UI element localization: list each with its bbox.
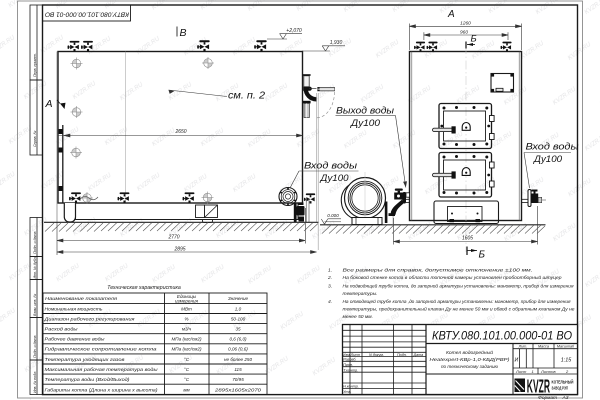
svg-text:Лит.: Лит. [518, 345, 528, 349]
svg-text:В: В [180, 27, 187, 39]
svg-text:Вход воды: Вход воды [526, 141, 579, 152]
svg-text:Вход воды: Вход воды [304, 160, 357, 171]
svg-text:не более 250: не более 250 [224, 357, 252, 362]
svg-text:Т.контр.: Т.контр. [343, 368, 358, 372]
svg-text:Справ. №: Справ. № [33, 131, 37, 147]
svg-text:На отводящей трубе котла ,до з: На отводящей трубе котла ,до запорной ар… [343, 298, 571, 305]
svg-text:Максимальная рабочая температу: Максимальная рабочая температура воды [45, 367, 159, 372]
svg-text:35: 35 [235, 327, 241, 332]
svg-text:Котел водогрейный: Котел водогрейный [446, 349, 493, 355]
svg-text:Разраб.: Разраб. [343, 358, 356, 362]
svg-text:КОТЕЛЬНЫЙ: КОТЕЛЬНЫЙ [552, 380, 574, 385]
svg-text:Техническая характеристика: Техническая характеристика [107, 285, 181, 291]
svg-text:2895: 2895 [173, 246, 185, 252]
svg-text:Лист: Лист [515, 369, 527, 374]
svg-text:Н.контр.: Н.контр. [343, 385, 359, 389]
svg-text:KVZR: KVZR [527, 375, 550, 396]
svg-text:2650: 2650 [174, 129, 186, 135]
svg-text:70/95: 70/95 [232, 377, 244, 382]
svg-text:Б: Б [471, 34, 477, 45]
svg-text:1:15: 1:15 [561, 358, 572, 364]
svg-text:960: 960 [460, 29, 468, 35]
svg-text:см. п. 2: см. п. 2 [228, 91, 266, 102]
svg-text:1605: 1605 [462, 236, 473, 242]
svg-text:Диапазон рабочего регулировани: Диапазон рабочего регулирования [43, 316, 135, 321]
svg-text:Ду100: Ду100 [319, 172, 349, 183]
svg-text:МВт: МВт [181, 306, 192, 311]
svg-text:На подводящей трубе котла, д: На подводящей трубе котла, до запорной а… [343, 283, 574, 290]
svg-text:МПа (кгс/см2): МПа (кгс/см2) [171, 337, 201, 342]
svg-text:115: 115 [234, 367, 242, 372]
svg-text:°С: °С [184, 357, 190, 362]
svg-text:Наименование показателя: Наименование показателя [45, 296, 118, 301]
svg-text:Габариты котла (Длина х ширина: Габариты котла (Длина х ширина х высота) [45, 388, 159, 393]
svg-text:Масса: Масса [538, 345, 549, 349]
svg-text:°С: °С [184, 377, 190, 382]
svg-text:измерения: измерения [175, 299, 199, 304]
svg-text:1,930: 1,930 [330, 40, 343, 46]
svg-text:мм: мм [183, 388, 190, 393]
svg-text:0.000: 0.000 [327, 213, 339, 218]
svg-text:4.: 4. [328, 299, 332, 305]
svg-text:Выход воды: Выход воды [336, 105, 394, 116]
svg-text:Номинальная мощность: Номинальная мощность [45, 306, 104, 311]
svg-text:0,06 (0,6): 0,06 (0,6) [228, 347, 248, 352]
svg-text:50-100: 50-100 [231, 316, 246, 321]
svg-text:А3: А3 [562, 395, 569, 400]
svg-text:Все размеры для справок, допус: Все размеры для справок, допустимое откл… [343, 268, 533, 274]
svg-text:Формат: Формат [538, 395, 557, 400]
svg-text:1.: 1. [328, 268, 332, 274]
svg-text:°С: °С [184, 367, 190, 372]
svg-text:0,6 (6,0): 0,6 (6,0) [229, 337, 247, 342]
svg-text:Перв. примен.: Перв. примен. [33, 53, 37, 77]
svg-text:Изм.Лист: Изм.Лист [343, 353, 360, 357]
svg-text:КВТУ.080.101.00.000-01 ВО: КВТУ.080.101.00.000-01 ВО [432, 331, 572, 343]
svg-text:Подп.: Подп. [397, 353, 407, 357]
svg-text:N докум.: N докум. [369, 353, 384, 357]
svg-text:Взам. инв. №: Взам. инв. № [33, 294, 37, 316]
svg-text:Значение: Значение [228, 296, 249, 301]
svg-text:температуры.: температуры. [343, 292, 378, 297]
svg-text:Дата: Дата [413, 353, 424, 357]
svg-text:Ду100: Ду100 [533, 153, 563, 164]
svg-text:2895х1605х2070: 2895х1605х2070 [214, 388, 262, 393]
svg-text:Ду100: Ду100 [350, 117, 381, 128]
svg-text:Подп. и дата: Подп. и дата [33, 232, 37, 255]
svg-text:А: А [45, 98, 53, 110]
svg-text:Утв.: Утв. [343, 390, 351, 394]
svg-text:А: А [447, 9, 455, 20]
svg-text:Масштаб: Масштаб [557, 345, 575, 349]
svg-text:2770: 2770 [167, 235, 179, 241]
svg-text:1,0: 1,0 [235, 306, 242, 311]
svg-text:Б: Б [479, 250, 486, 261]
svg-text:Рабочее давление воды: Рабочее давление воды [45, 337, 106, 342]
svg-text:Heatexpert-КВр-1,0-КБД(РВР): Heatexpert-КВр-1,0-КБД(РВР) [430, 357, 511, 362]
svg-text:И: И [514, 358, 518, 364]
svg-text:%: % [184, 316, 188, 321]
svg-text:2.: 2. [327, 275, 332, 281]
svg-text:по техническому заданию: по техническому заданию [441, 364, 498, 369]
svg-text:м3/ч: м3/ч [182, 327, 192, 332]
svg-text:Инв. № дубл.: Инв. № дубл. [33, 256, 37, 278]
svg-text:ЗАВОД РЭП: ЗАВОД РЭП [552, 386, 569, 391]
svg-text:МПа (кгс/см2): МПа (кгс/см2) [171, 347, 201, 352]
svg-text:Подп. и дата: Подп. и дата [33, 336, 37, 359]
svg-text:Температура воды (Вход/Выход): Температура воды (Вход/Выход) [45, 377, 131, 382]
svg-text:Температура уходящих газов: Температура уходящих газов [45, 357, 126, 362]
svg-text:КВТУ.080.101.00.000-01 ВО: КВТУ.080.101.00.000-01 ВО [45, 11, 129, 18]
svg-text:Пров.: Пров. [343, 363, 353, 367]
svg-text:3.: 3. [328, 284, 332, 290]
svg-text:Гидравлическое сопротивление к: Гидравлическое сопротивление котла [45, 347, 158, 352]
svg-text:1260: 1260 [460, 21, 471, 27]
svg-text:Инв. № подл.: Инв. № подл. [33, 371, 37, 393]
svg-text:менее 50 мм.: менее 50 мм. [343, 314, 373, 320]
svg-text:Расход воды: Расход воды [45, 327, 79, 332]
svg-text:На боковой стенке котла в обла: На боковой стенке котла в области топочн… [343, 274, 562, 281]
svg-text:температуры, предохранительный: температуры, предохранительный клапан Ду… [343, 306, 575, 313]
svg-text:Листов: Листов [540, 369, 556, 374]
svg-text:1: 1 [532, 369, 534, 374]
svg-text:+2,070: +2,070 [286, 28, 302, 34]
